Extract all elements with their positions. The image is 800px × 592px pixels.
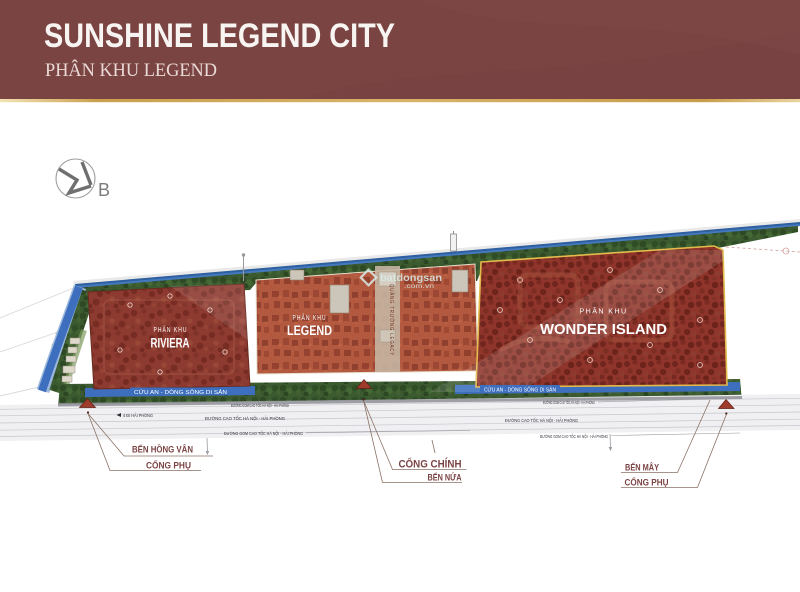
svg-text:.com.vn: .com.vn bbox=[404, 284, 434, 290]
svg-text:QUẢNG TRƯỜNG LEGACY: QUẢNG TRƯỜNG LEGACY bbox=[388, 284, 395, 356]
svg-text:BẾN HỒNG VÂN: BẾN HỒNG VÂN bbox=[132, 444, 193, 455]
svg-text:CỔNG PHỤ: CỔNG PHỤ bbox=[146, 460, 191, 471]
svg-text:TRỤC PHỐ DI SẢN: TRỤC PHỐ DI SẢN bbox=[277, 377, 322, 384]
svg-text:SUNSHINE LEGEND CITY: SUNSHINE LEGEND CITY bbox=[44, 17, 395, 55]
svg-text:ĐƯỜNG CAO TỐC HÀ NỘI - HẢI PHÒ: ĐƯỜNG CAO TỐC HÀ NỘI - HẢI PHÒNG bbox=[505, 417, 578, 423]
svg-text:4 ĐI HẢI PHÒNG: 4 ĐI HẢI PHÒNG bbox=[123, 412, 153, 418]
svg-text:CỬU AN - DÒNG SÔNG DI SẢN: CỬU AN - DÒNG SÔNG DI SẢN bbox=[134, 389, 227, 396]
svg-text:CỔNG PHỤ: CỔNG PHỤ bbox=[625, 477, 669, 489]
svg-text:CỬU AN - DÒNG SÔNG DI SẢN: CỬU AN - DÒNG SÔNG DI SẢN bbox=[484, 386, 556, 393]
svg-text:ĐƯỜNG GOM CAO TỐC HÀ NỘI - HẢI: ĐƯỜNG GOM CAO TỐC HÀ NỘI - HẢI PHÒNG bbox=[224, 431, 303, 436]
svg-text:PHÂN KHU: PHÂN KHU bbox=[154, 325, 188, 334]
svg-text:ĐƯỜNG GOM CAO TỐC HÀ NỘI - HẢI: ĐƯỜNG GOM CAO TỐC HÀ NỘI - HẢI PHÒNG bbox=[540, 434, 608, 439]
svg-text:LEGEND: LEGEND bbox=[287, 323, 332, 338]
svg-text:BẾN MÂY: BẾN MÂY bbox=[625, 462, 659, 473]
svg-text:PHÂN KHU: PHÂN KHU bbox=[580, 307, 628, 316]
svg-text:ĐƯỜNG GOM CAO TỐC HÀ NỘI - HẢI: ĐƯỜNG GOM CAO TỐC HÀ NỘI - HẢI PHÒNG bbox=[543, 400, 595, 405]
svg-text:ĐƯỜNG GOM CAO TỐC HÀ NỘI - HẢI: ĐƯỜNG GOM CAO TỐC HÀ NỘI - HẢI PHÒNG bbox=[231, 403, 289, 408]
svg-text:ĐƯỜNG CAO TỐC HÀ NỘI - HẢI PHÒ: ĐƯỜNG CAO TỐC HÀ NỘI - HẢI PHÒNG bbox=[205, 415, 285, 421]
svg-text:batdongsan: batdongsan bbox=[380, 272, 442, 284]
svg-text:WONDER ISLAND: WONDER ISLAND bbox=[540, 322, 667, 338]
svg-text:TRỤC PHỐ DI SẢN: TRỤC PHỐ DI SẢN bbox=[397, 377, 437, 384]
svg-text:B: B bbox=[98, 180, 110, 200]
svg-text:CỔNG CHÍNH: CỔNG CHÍNH bbox=[399, 458, 462, 471]
svg-text:RIVIERA: RIVIERA bbox=[151, 336, 190, 351]
svg-text:PHÂN KHU LEGEND: PHÂN KHU LEGEND bbox=[45, 59, 217, 81]
svg-text:PHÂN KHU: PHÂN KHU bbox=[293, 313, 327, 322]
svg-text:BẾN NỨA: BẾN NỨA bbox=[428, 472, 462, 483]
